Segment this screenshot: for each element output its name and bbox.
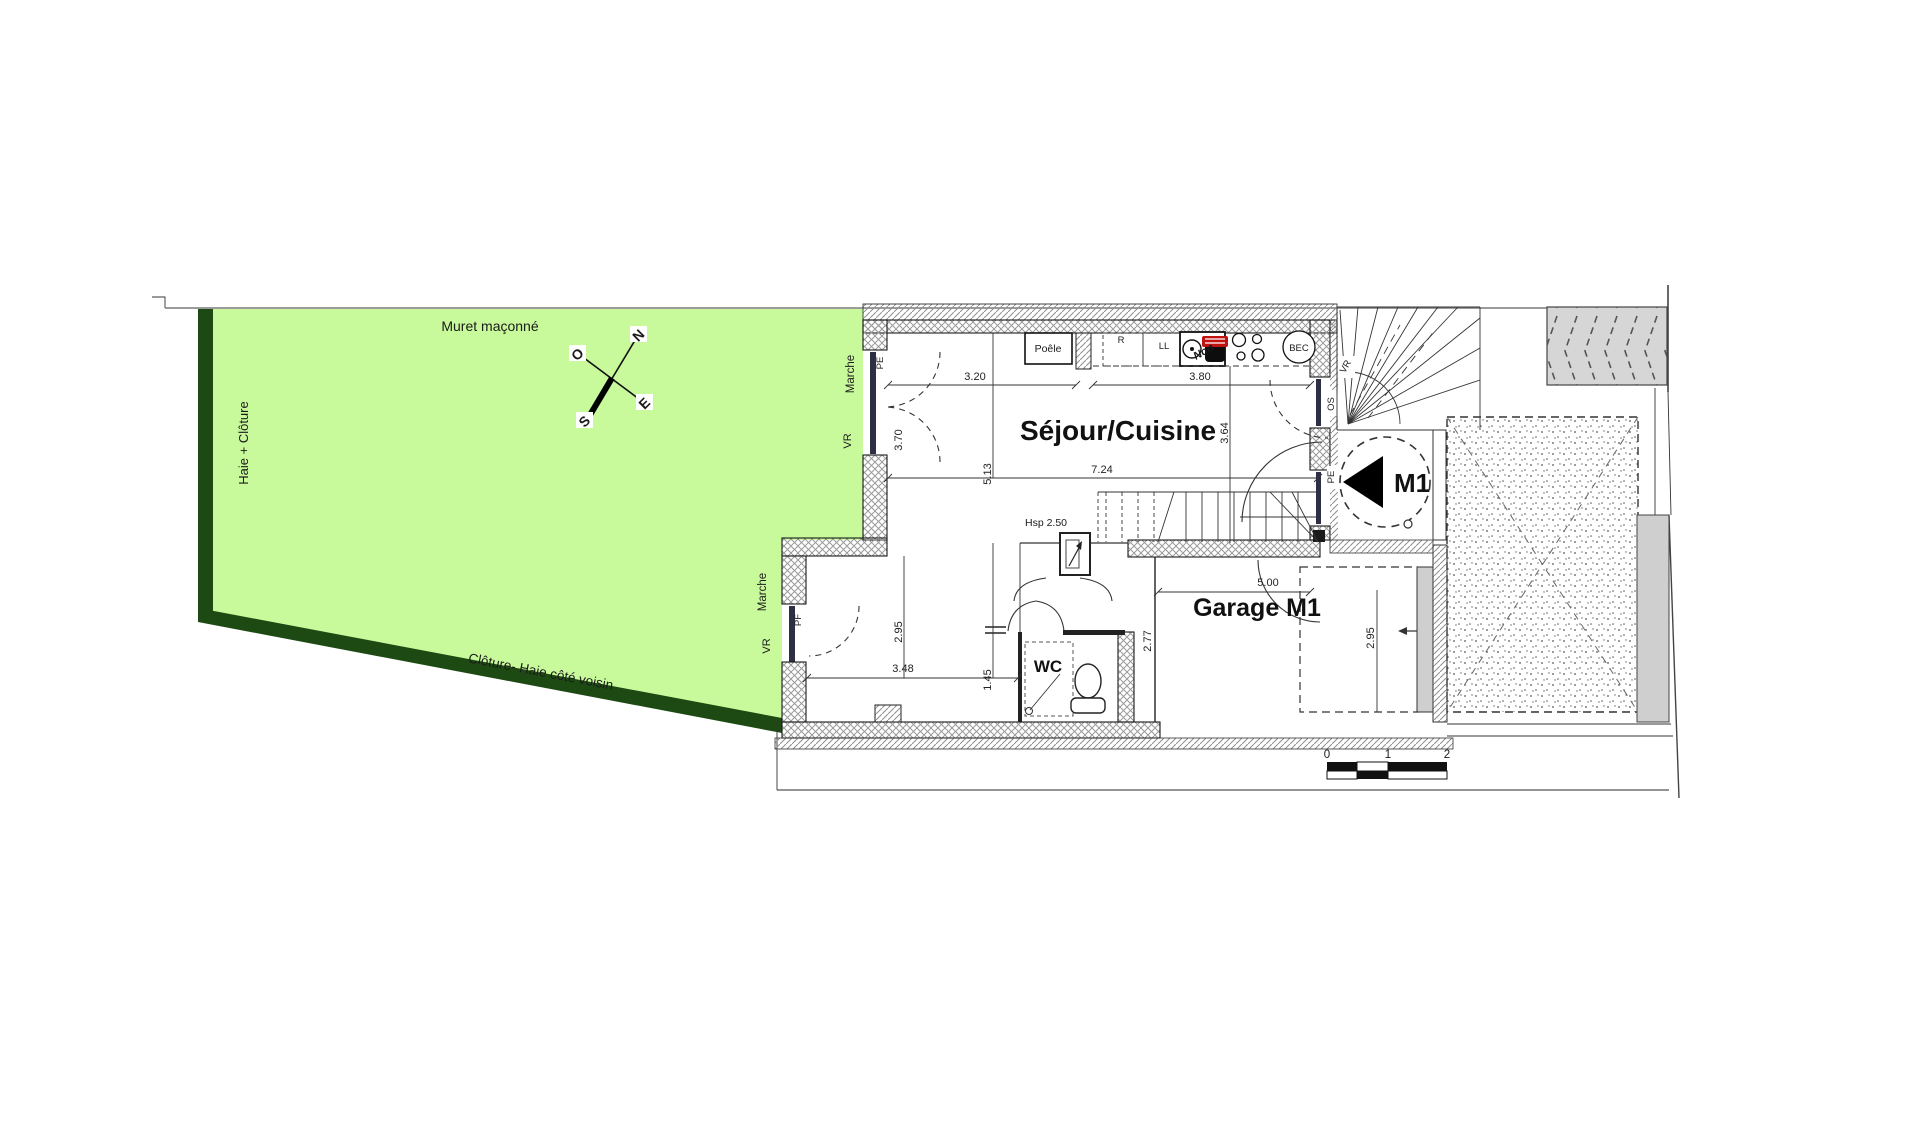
garage-arrow-head (1398, 627, 1407, 635)
window-os-right (1316, 379, 1321, 426)
wc-dashed-zone (1025, 642, 1073, 716)
door-hinge-dot (1404, 520, 1412, 528)
hedge-left-strip (198, 309, 213, 614)
wall-bottom-pillar (875, 705, 901, 722)
wall-left-c (782, 556, 806, 604)
dim-380: 3.80 (1189, 371, 1210, 383)
wall-top (863, 320, 1337, 333)
marche-upper-label: Marche (845, 355, 857, 393)
garage-door-panel (1417, 567, 1433, 712)
scale-bar: 0 1 2 (1324, 749, 1450, 779)
wall-bottom (782, 722, 1160, 738)
entrance-marker-m1: M1 (1340, 437, 1430, 528)
garage-door-zone (1300, 567, 1418, 712)
muret-hall-garage (1330, 540, 1433, 553)
east-gray-strip (1637, 515, 1669, 722)
wall-right-b (1310, 428, 1330, 470)
dim-hsp: Hsp 2.50 (1025, 517, 1067, 529)
dim-145: 1.45 (982, 669, 994, 690)
scale-1: 1 (1385, 749, 1391, 761)
floor-plan-drawing: Muret maçonné Haie + Clôture Clôture- Ha… (0, 0, 1920, 1141)
wall-stub-kitchen (1076, 333, 1091, 369)
garden-lawn (198, 309, 863, 720)
kitchen-fixtures: Poêle R LL Non BEC (1025, 331, 1315, 366)
wc-door-arc-right (1036, 601, 1064, 631)
cooktop (1233, 334, 1265, 362)
toilet-bowl (1075, 664, 1101, 698)
wall-garage-top (1128, 540, 1320, 557)
scale-0: 0 (1324, 749, 1330, 761)
wc-label: WC (1034, 657, 1062, 676)
wall-wc-right (1118, 632, 1134, 722)
washer-label: LL (1159, 341, 1170, 352)
parking-stipple-area (1447, 417, 1638, 712)
wall-left-d (782, 662, 806, 722)
dim-320: 3.20 (964, 371, 985, 383)
wall-hall-right (1433, 430, 1446, 540)
wc-drain (1026, 708, 1033, 715)
dim-500: 5.00 (1257, 577, 1278, 589)
floor-plan-canvas: Muret maçonné Haie + Clôture Clôture- Ha… (0, 0, 1920, 1141)
stove-label: Poêle (1035, 343, 1062, 355)
sejour-label: Séjour/Cuisine (1020, 415, 1216, 446)
closet-door-arc-left (1014, 578, 1046, 601)
pe-right-label: PE (1326, 471, 1337, 484)
pe-left-label: PE (875, 357, 886, 370)
dim-348: 3.48 (892, 663, 913, 675)
east-edge-outer (1668, 392, 1671, 515)
water-heater-label: BEC (1289, 343, 1309, 354)
dim-295a: 2.95 (893, 621, 905, 642)
wall-step (782, 538, 887, 556)
haie-cloture-label: Haie + Clôture (236, 401, 251, 484)
wall-garage-right (1433, 545, 1447, 722)
vr-upper-label: VR (842, 433, 854, 448)
vr-lower-label: VR (761, 638, 773, 653)
closet-door-arc-right (1080, 578, 1112, 601)
dim-513: 5.13 (982, 463, 994, 484)
wc-door-arc-left (1008, 601, 1036, 631)
garage-label: Garage M1 (1193, 594, 1321, 622)
door-arc-pf-left (809, 606, 859, 656)
exterior-winder-stairs (1337, 307, 1480, 430)
boundary-notch (152, 297, 165, 308)
dim-364: 3.64 (1219, 422, 1231, 443)
muret-label: Muret maçonné (441, 318, 538, 334)
east-boundary-slant (1669, 515, 1679, 798)
marche-lower-label: Marche (757, 573, 769, 611)
paving-chevron-pattern (1547, 307, 1667, 385)
muret-bottom (775, 738, 1453, 749)
electrical-panel (1060, 533, 1090, 575)
muret-top (863, 304, 1337, 320)
fridge-label: R (1118, 335, 1125, 346)
pf-left-label: PF (793, 614, 804, 626)
wc-wall-top (1063, 630, 1125, 635)
os-right-label: OS (1326, 397, 1337, 411)
dim-370: 3.70 (893, 429, 905, 450)
wc-zone-diagonal (1030, 674, 1060, 710)
toilet-tank (1071, 698, 1105, 713)
wc-room: WC (985, 627, 1125, 722)
dim-724: 7.24 (1091, 464, 1112, 476)
entrance-marker-label: M1 (1394, 468, 1430, 498)
scale-2: 2 (1444, 749, 1450, 761)
wall-left-a (863, 320, 887, 350)
muret-right-c (1330, 487, 1338, 540)
dim-295b: 2.95 (1365, 627, 1377, 648)
door-arc-pe-left-top (885, 352, 940, 407)
wall-left-b (863, 455, 887, 540)
dim-277: 2.77 (1142, 630, 1154, 651)
